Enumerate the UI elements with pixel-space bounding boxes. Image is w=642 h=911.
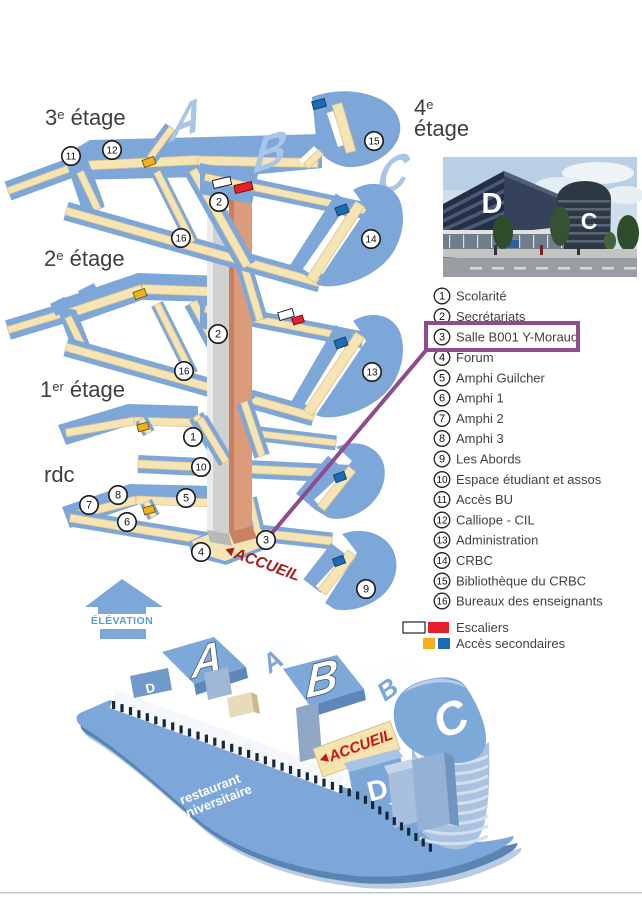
svg-text:4: 4 — [198, 547, 204, 559]
svg-text:Amphi 3: Amphi 3 — [456, 431, 504, 446]
svg-text:2: 2 — [215, 329, 221, 341]
svg-text:6: 6 — [439, 392, 445, 404]
svg-text:ÉLÉVATION: ÉLÉVATION — [91, 614, 153, 627]
svg-text:10: 10 — [195, 463, 207, 474]
svg-text:Accès secondaires: Accès secondaires — [456, 636, 566, 651]
svg-text:Les Abords: Les Abords — [456, 452, 522, 467]
svg-text:7: 7 — [86, 500, 92, 512]
svg-text:11: 11 — [437, 495, 448, 506]
svg-text:CRBC: CRBC — [456, 553, 493, 568]
svg-text:Administration: Administration — [456, 533, 538, 548]
svg-text:9: 9 — [439, 453, 445, 465]
svg-text:11: 11 — [66, 152, 77, 163]
svg-text:Bureaux des enseignants: Bureaux des enseignants — [456, 594, 603, 609]
svg-text:14: 14 — [365, 235, 377, 246]
svg-text:16: 16 — [178, 367, 190, 378]
svg-text:1: 1 — [190, 432, 196, 444]
svg-text:Amphi 2: Amphi 2 — [456, 411, 504, 426]
svg-text:Calliope - CIL: Calliope - CIL — [456, 513, 535, 528]
svg-text:Accès BU: Accès BU — [456, 492, 513, 507]
svg-text:16: 16 — [436, 596, 448, 607]
svg-text:étage: étage — [414, 116, 469, 141]
svg-text:13: 13 — [366, 368, 378, 379]
svg-text:8: 8 — [439, 433, 445, 445]
svg-text:Amphi Guilcher: Amphi Guilcher — [456, 371, 546, 386]
svg-text:9: 9 — [363, 584, 369, 596]
svg-text:12: 12 — [106, 146, 118, 157]
svg-text:12: 12 — [436, 515, 448, 526]
svg-text:Salle B001 Y-Moraud: Salle B001 Y-Moraud — [456, 330, 578, 345]
svg-text:15: 15 — [368, 137, 380, 148]
svg-text:3e étage: 3e étage — [45, 105, 126, 130]
svg-text:1: 1 — [439, 290, 445, 302]
svg-text:Espace étudiant et assos: Espace étudiant et assos — [456, 472, 602, 487]
svg-text:10: 10 — [436, 475, 448, 486]
svg-text:Amphi 1: Amphi 1 — [456, 391, 504, 406]
svg-text:5: 5 — [183, 493, 189, 505]
svg-text:Forum: Forum — [456, 350, 494, 365]
svg-text:13: 13 — [436, 535, 448, 546]
svg-text:Scolarité: Scolarité — [456, 289, 507, 304]
svg-text:4: 4 — [439, 352, 445, 364]
svg-text:14: 14 — [436, 556, 448, 567]
svg-text:2e étage: 2e étage — [44, 246, 125, 271]
svg-text:6: 6 — [124, 517, 130, 529]
svg-text:7: 7 — [439, 413, 445, 425]
svg-text:B: B — [305, 648, 339, 709]
svg-text:8: 8 — [115, 490, 121, 502]
svg-text:C: C — [581, 208, 598, 234]
svg-text:Escaliers: Escaliers — [456, 620, 509, 635]
svg-text:2: 2 — [216, 197, 222, 209]
svg-text:rdc: rdc — [44, 462, 75, 487]
svg-text:3: 3 — [263, 535, 269, 547]
svg-text:Bibliothèque du CRBC: Bibliothèque du CRBC — [456, 574, 586, 589]
svg-text:3: 3 — [439, 331, 445, 343]
svg-text:5: 5 — [439, 372, 445, 384]
svg-text:16: 16 — [175, 234, 187, 245]
svg-text:D: D — [482, 188, 503, 220]
svg-text:15: 15 — [436, 576, 448, 587]
